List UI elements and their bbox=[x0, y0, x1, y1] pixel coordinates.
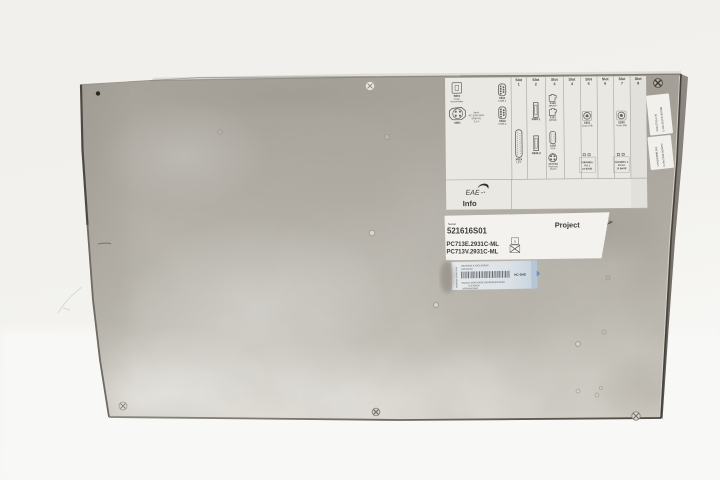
svg-text:PC713E.2931C-ML: PC713E.2931C-ML bbox=[447, 242, 500, 248]
svg-text:4: 4 bbox=[571, 82, 573, 86]
svg-text:XXXXXXX XXXXX XXX: XXXXXXX XXXXX XXX bbox=[456, 266, 458, 288]
svg-text:EAE: EAE bbox=[466, 190, 480, 197]
svg-text:X/X/XXXXX/XX/: X/X/XXXXX/XX/ bbox=[462, 288, 478, 290]
svg-text:3: 3 bbox=[553, 82, 555, 86]
svg-text:MP/MD: MP/MD bbox=[549, 120, 557, 122]
svg-text:1: 1 bbox=[518, 82, 520, 86]
svg-text:Mouse: Mouse bbox=[550, 169, 557, 171]
svg-text:10 BASE: 10 BASE bbox=[616, 167, 626, 170]
svg-text:PC713V.2931C-ML: PC713V.2931C-ML bbox=[447, 249, 499, 255]
svg-text:X801: X801 bbox=[454, 121, 461, 125]
svg-text:6: 6 bbox=[604, 82, 606, 86]
svg-text:Coax 10B: Coax 10B bbox=[582, 124, 593, 127]
svg-text:Coax 10B: Coax 10B bbox=[616, 124, 627, 127]
svg-text:2-1 A: 2-1 A bbox=[474, 120, 480, 123]
svg-text:COM 2: COM 2 bbox=[498, 123, 507, 126]
svg-text:XXXXXXX.X.XXX.XXXXX: XXXXXXX.X.XXX.XXXXX bbox=[461, 264, 489, 267]
svg-text:2: 2 bbox=[535, 82, 537, 86]
svg-text:10 BASE: 10 BASE bbox=[582, 167, 592, 170]
svg-text:VGA: VGA bbox=[551, 147, 556, 150]
svg-text:X826.2: X826.2 bbox=[532, 151, 541, 155]
svg-text:LPT: LPT bbox=[517, 161, 522, 164]
svg-text:521616S01: 521616S01 bbox=[447, 227, 488, 236]
svg-text:XXXXXXXX: XXXXXXXX bbox=[461, 269, 473, 271]
svg-text:Project: Project bbox=[555, 220, 581, 229]
svg-text:S801: S801 bbox=[454, 94, 461, 98]
svg-text:COM 1: COM 1 bbox=[498, 100, 507, 103]
svg-text:MPI/DP: MPI/DP bbox=[549, 106, 557, 108]
svg-text:x: x bbox=[514, 240, 516, 244]
svg-text:Info: Info bbox=[463, 199, 477, 208]
svg-text:X130: X130 bbox=[550, 101, 557, 105]
svg-text:X826.1: X826.1 bbox=[531, 117, 540, 121]
svg-text:X101: X101 bbox=[550, 115, 557, 119]
svg-text:Serial: Serial bbox=[448, 222, 456, 226]
svg-text:Nockschalter: Nockschalter bbox=[451, 100, 464, 103]
svg-text:5: 5 bbox=[588, 82, 590, 86]
svg-text:8: 8 bbox=[637, 81, 639, 85]
svg-text:HC-SHD: HC-SHD bbox=[514, 272, 527, 276]
svg-text:X102: X102 bbox=[550, 144, 557, 148]
svg-text:7: 7 bbox=[621, 81, 623, 85]
